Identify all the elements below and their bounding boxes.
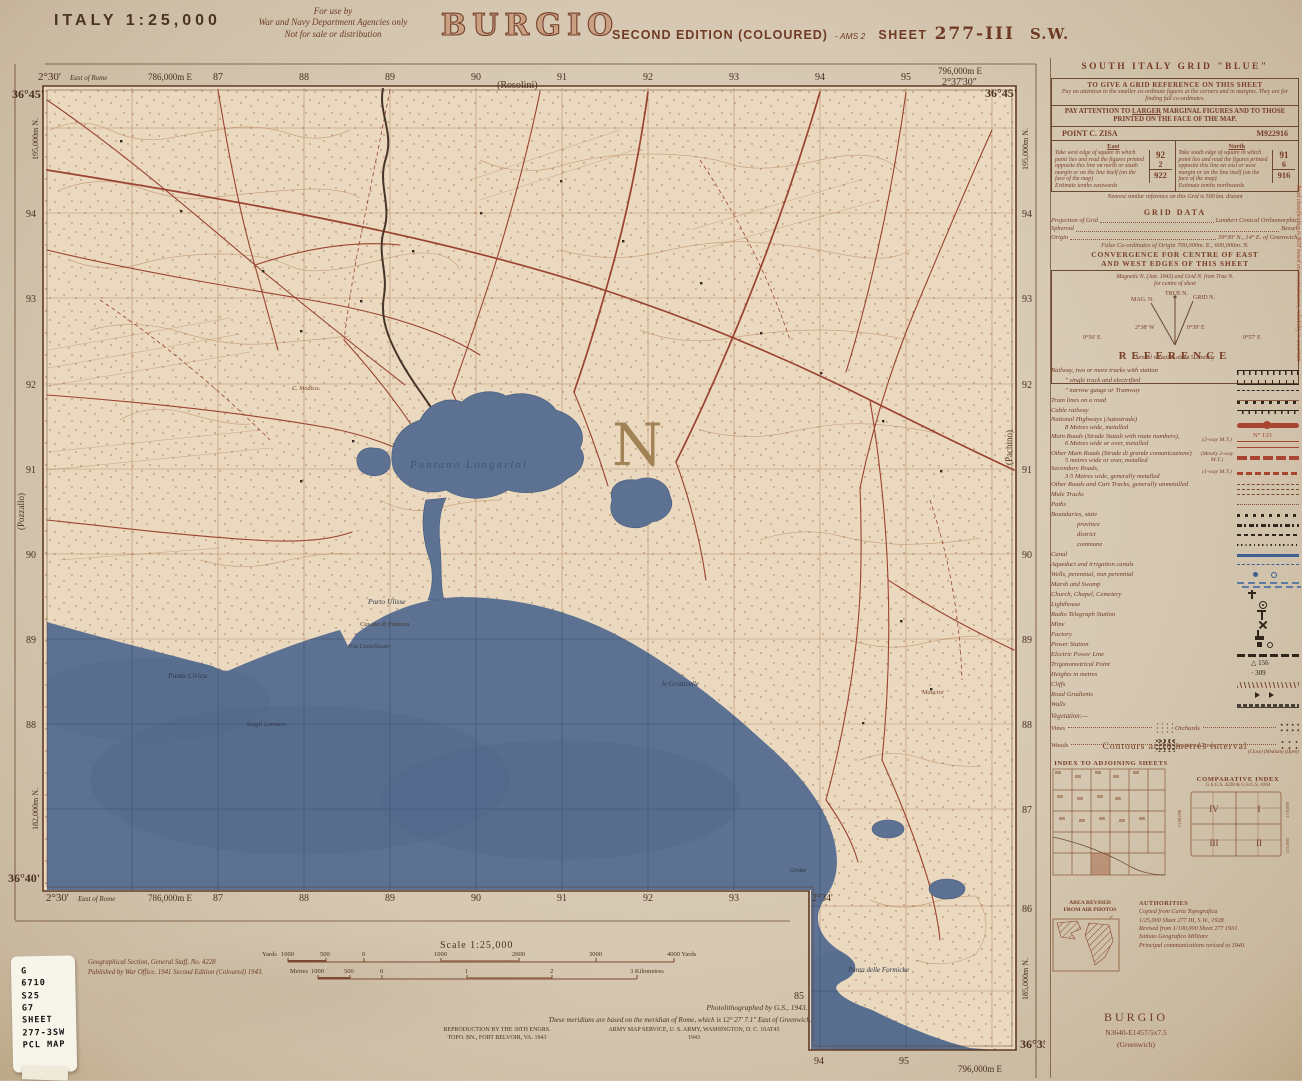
east-of-rome-top: East of Rome [69,74,107,82]
easting-full-bottom-left: 786,000m E [148,893,193,903]
northing-full-br: 185,000m N. [1021,958,1030,1000]
svg-text:TRUE N.: TRUE N. [1165,291,1188,297]
corner-lat-tl: 36°45' [12,87,44,101]
svg-text:88: 88 [299,893,309,904]
svg-text:2000: 2000 [512,951,525,958]
sheet-footer: BURGIO N3640-E1457/5x7.5 (Greenwich) [1051,1010,1221,1049]
gridref-point-value: M922916 [1256,129,1288,138]
vines-icon [1155,722,1175,735]
boundary-district-icon [1237,530,1299,540]
easting-full-top-right: 796,000m E [938,66,983,76]
production-notes: Photolithographed by G.S., 1943. These m… [443,1003,811,1041]
yards-prefix: Yards [262,951,277,958]
reference-title: REFERENCE [1051,350,1299,362]
svg-text:92: 92 [643,893,653,904]
svg-text:IV: IV [1209,804,1219,814]
imprint: Geographical Section, General Staff, No.… [88,958,263,977]
svg-text:89: 89 [385,893,395,904]
area-revised-box: AREA REVISED FROM AIR PHOTOS [1051,900,1129,980]
cart-track-icon [1237,480,1299,490]
svg-text:94: 94 [815,72,825,83]
ext-85: 85 [794,991,804,1002]
map-sheet: 2°30' East of Rome 786,000m E 8788 8990 … [0,0,1045,1080]
east-estimate: Estimate tenths eastwards [1055,183,1172,190]
svg-text:GRID N.: GRID N. [1193,295,1215,301]
east-digits: 92 [1150,150,1172,160]
corner-lon-tl: 2°30' [38,71,61,83]
meridian-note: These meridians are based on the meridia… [548,1016,811,1024]
road-gradient-icon [1237,690,1299,700]
formiche-label: Punta delle Formiche [847,966,909,974]
area-revised-diagram [1051,913,1123,975]
svg-text:0°39' E: 0°39' E [1187,324,1205,331]
svg-text:95: 95 [899,1056,909,1067]
land-detail [30,86,1020,1060]
repeat-reference-note: Nearest similar reference on this Grid i… [1051,194,1299,200]
lon-mid-label: 2°34' [812,893,833,904]
svg-text:90: 90 [471,72,481,83]
orchards-icon [1279,722,1299,735]
svg-text:93: 93 [729,893,739,904]
footer-sheet-name: BURGIO [1051,1010,1221,1025]
svg-text:87: 87 [213,893,223,904]
railway-single-icon [1237,376,1299,386]
svg-text:89: 89 [385,72,395,83]
scale-bars: Scale 1:25,000 Yards 1000 500 0 1000 200… [262,940,697,979]
grotticelle-label: le Grotticelle [662,680,699,688]
svg-text:89: 89 [26,635,36,646]
corner-lat-tr: 36°45' [985,86,1017,100]
maucini-label: Maucini [921,689,944,696]
adjacent-sheet-left: (Pozzallo) [16,493,26,530]
authorities: AUTHORITIES Copied from Carta Topografic… [1139,900,1246,980]
east-tenth: 2 [1150,160,1172,170]
svg-text:93: 93 [729,72,739,83]
svg-text:88: 88 [299,72,309,83]
gridref-note: Pay no attention to the smaller co-ordin… [1055,89,1295,103]
svg-text:91: 91 [26,465,36,476]
library-label: G 6710 S25 G7 SHEET 277-3SW PCL MAP [11,955,77,1072]
svg-text:95: 95 [901,72,911,83]
grid-reference-box: TO GIVE A GRID REFERENCE ON THIS SHEET P… [1051,78,1299,192]
index-comparative: COMPARATIVE INDEX G.S.G.S. 4228 & G.S.G.… [1177,776,1299,882]
finanza-label: Cas.ma di Finanza [360,621,409,628]
svg-text:87: 87 [1022,805,1032,816]
svg-text:90: 90 [26,550,36,561]
svg-text:88: 88 [1022,720,1032,731]
gridref-attention: PAY ATTENTION TO LARGER MARGINAL FIGURES… [1052,106,1298,127]
svg-text:94: 94 [26,209,36,220]
corner-lat-bl: 36°40' [8,871,40,885]
vegetation-label: Vegetation:— [1051,713,1299,720]
wells-icon [1237,570,1299,580]
repro-note-1: REPRODUCTION BY THE 30TH ENGRS. [443,1027,551,1033]
north-digits: 91 [1273,150,1295,160]
svg-text:1000: 1000 [434,951,447,958]
church-icon [1237,590,1299,600]
boundary-state-icon [1237,510,1299,520]
cliffs-icon [1237,680,1299,690]
svg-text:3 Kilometres: 3 Kilometres [630,968,664,975]
ams-note-2: 1943 [688,1035,700,1041]
svg-text:MAG. N.: MAG. N. [1131,297,1154,303]
svg-text:1/25,000: 1/25,000 [1285,837,1291,854]
east-of-rome-bottom: East of Rome [77,895,115,903]
svg-text:94: 94 [814,1056,824,1067]
current-sheet-cell [1091,853,1110,875]
svg-text:86: 86 [1022,904,1032,915]
canal-icon [1237,550,1299,560]
svg-text:2°38' W: 2°38' W [1135,324,1155,331]
svg-text:1000: 1000 [311,968,324,975]
north-total: 916 [1273,170,1295,180]
svg-text:0: 0 [362,951,365,958]
footer-greenwich: (Greenwich) [1051,1040,1221,1049]
svg-text:1: 1 [465,968,468,975]
svg-text:90: 90 [471,893,481,904]
modica-label: C. Modica [292,385,318,392]
tramline-icon [1237,396,1299,406]
scogli-label: Scogli Lunnaro [246,721,287,728]
east-total: 922 [1150,170,1172,180]
castellazzo-label: P.ta Castellazzo [347,643,390,650]
secondary-road-icon [1237,468,1299,478]
grid-square-letter: N [612,411,663,479]
repro-note-2: TOPO. BN., FORT BELVOIR, VA. 1943 [448,1035,547,1041]
svg-text:0°57' E: 0°57' E [1243,334,1261,341]
autostrada-icon [1237,419,1299,429]
footer-sheet-ref: N3640-E1457/5x7.5 [1051,1028,1221,1037]
contours-note: Contours at 10 metres interval [1051,742,1299,752]
svg-text:500: 500 [344,968,354,975]
porto-ulisse-label: Porto Ulisse [367,597,406,606]
index-adjoining: INDEX TO ADJOINING SHEETS [1051,760,1171,882]
svg-text:I: I [1258,804,1261,814]
corner-lon-tr: 2°37'30" [942,77,977,88]
svg-text:II: II [1256,838,1262,848]
main-road-icon: N° 133 [1237,432,1299,448]
north-tenth: 6 [1273,160,1295,170]
height-icon: · 309 [1237,670,1299,680]
railway-double-icon [1237,366,1299,376]
mine-icon [1237,620,1299,630]
convergence-diagram: TRUE N. MAG. N. GRID N. 2°38' W 0°39' E … [1081,287,1269,349]
radio-station-icon [1237,610,1299,620]
corner-lat-br: 36°35' [1020,1037,1045,1051]
railway-narrow-icon [1237,386,1299,396]
grotta-label: Grotta [790,868,806,874]
svg-text:1/100,000: 1/100,000 [1177,809,1183,828]
adjoining-sheets-diagram [1051,767,1167,877]
svg-text:93: 93 [26,294,36,305]
walls-icon [1237,700,1299,710]
svg-text:3000: 3000 [589,951,602,958]
metres-prefix: Metres [290,968,309,975]
gridref-point-label: POINT C. ZISA [1062,129,1118,138]
imprint-line1: Geographical Section, General Staff, No.… [88,958,263,968]
lagoon-label: Pantano Longarini [409,459,528,471]
label-scrap [22,1065,68,1081]
svg-text:III: III [1210,838,1219,848]
svg-text:0°56' E: 0°56' E [1083,334,1101,341]
corner-lon-bl: 2°30' [46,892,69,904]
svg-text:89: 89 [1022,635,1032,646]
trig-point-icon: △ 156 [1237,660,1299,670]
northing-full-right: 195,000m N. [1021,128,1030,170]
power-station-icon [1237,640,1299,650]
svg-text:90: 90 [1022,550,1032,561]
comparative-index-diagram: IV I III II 1/100,000 1/50,000 1/25,000 [1177,788,1295,866]
imprint-line2: Published by War Office, 1941 Second Edi… [88,968,263,978]
gridref-heading: TO GIVE A GRID REFERENCE ON THIS SHEET [1055,81,1295,89]
svg-text:91: 91 [1022,465,1032,476]
grid-panel-title: SOUTH ITALY GRID "BLUE" [1051,62,1299,72]
mule-track-icon [1237,490,1299,500]
svg-text:4000 Yards: 4000 Yards [667,951,697,958]
northing-full-bl: 182,000m N. [31,788,40,830]
scale-text: Scale 1:25,000 [440,940,513,951]
marsh-icon [1237,580,1299,590]
path-icon [1237,500,1299,510]
svg-text:500: 500 [320,951,330,958]
svg-text:0: 0 [380,968,383,975]
svg-text:94: 94 [1022,209,1032,220]
road-classification-note: Road classification is NOT based on reco… [1295,178,1301,368]
photolith-note: Photolithographed by G.S., 1943. [705,1003,807,1012]
svg-text:92: 92 [26,380,36,391]
adjacent-sheet-right: (Pachino) [1004,430,1014,465]
boundary-province-icon [1237,520,1299,530]
legend-rows: Railway, two or more tracks with station… [1051,366,1299,755]
gridref-east-col: East Take west edge of square in which p… [1052,141,1175,191]
svg-text:87: 87 [213,72,223,83]
marginalia-panel: SOUTH ITALY GRID "BLUE" TO GIVE A GRID R… [1050,58,1299,1078]
svg-text:1/50,000: 1/50,000 [1285,801,1291,818]
easting-full-ext: 796,000m E [958,1064,1003,1074]
cable-railway-icon [1237,406,1299,416]
adjacent-sheet-top: (Rosolini) [497,80,538,91]
aqueduct-icon [1237,560,1299,570]
other-main-road-icon [1237,452,1299,462]
svg-text:2: 2 [550,968,553,975]
svg-text:93: 93 [1022,294,1032,305]
boundary-commune-icon [1237,540,1299,550]
ams-note-1: ARMY MAP SERVICE, U. S. ARMY, WASHINGTON… [608,1027,779,1033]
easting-full-top-left: 786,000m E [148,72,193,82]
svg-text:1000: 1000 [281,951,294,958]
lighthouse-icon [1237,600,1299,610]
svg-text:91: 91 [557,72,567,83]
cirica-label: Punta Cirica [167,671,207,680]
convergence-heading: CONVERGENCE FOR CENTRE OF EAST AND WEST … [1051,250,1299,269]
gridref-north-col: North Take south edge of square in which… [1175,141,1299,191]
svg-text:92: 92 [643,72,653,83]
svg-text:88: 88 [26,720,36,731]
grid-data-block: GRID DATA Projection of GridLambert Coni… [1051,208,1299,249]
svg-text:92: 92 [1022,380,1032,391]
factory-icon [1237,630,1299,640]
north-estimate: Estimate tenths northwards [1179,183,1296,190]
northing-full-left: 195,000m N. [31,118,40,160]
svg-text:91: 91 [557,893,567,904]
